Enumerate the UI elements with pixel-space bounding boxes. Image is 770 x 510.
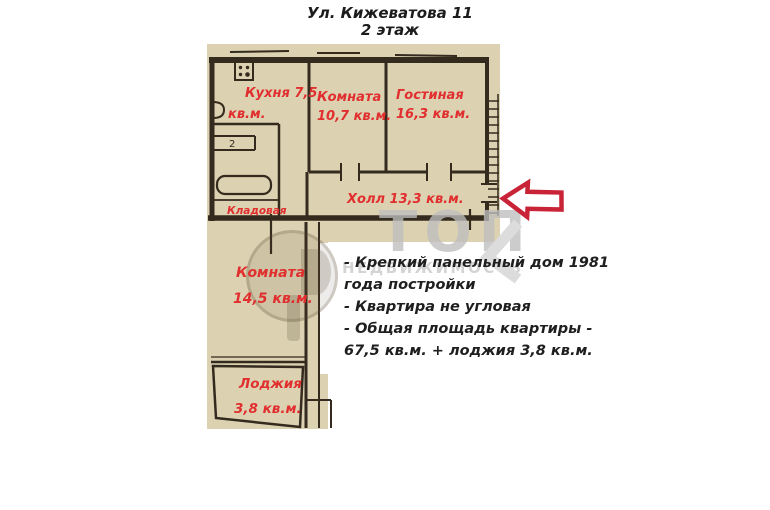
label-big-room: Комната 14,5 кв.м.	[233, 260, 313, 312]
description-line: 67,5 кв.м. + лоджия 3,8 кв.м.	[344, 340, 570, 362]
description-text: - Крепкий панельный дом 1981 года постро…	[344, 252, 570, 362]
label-storage: Кладовая	[227, 201, 287, 221]
label-loggia: Лоджия 3,8 кв.м.	[234, 372, 302, 422]
label-hall: Холл 13,3 кв.м.	[347, 190, 464, 210]
description-line: - Общая площадь квартиры -	[344, 318, 570, 340]
address-line: Ул. Кижеватова 11	[250, 5, 530, 22]
listing-image: Ул. Кижеватова 11 2 этаж	[0, 0, 770, 510]
label-small-room: Комната 10,7 кв.м.	[317, 88, 391, 126]
entrance-arrow-icon	[498, 176, 568, 224]
page-title: Ул. Кижеватова 11 2 этаж	[250, 5, 530, 39]
label-living-room: Гостиная 16,3 кв.м.	[396, 86, 470, 124]
description-line: - Квартира не угловая	[344, 296, 570, 318]
floor-line: 2 этаж	[250, 22, 530, 39]
toilet-room-number: 2	[229, 139, 235, 150]
description-line: года постройки	[344, 274, 570, 296]
description-line: - Крепкий панельный дом 1981	[344, 252, 570, 274]
label-kitchen: Кухня 7,5 кв.м.	[228, 83, 317, 125]
